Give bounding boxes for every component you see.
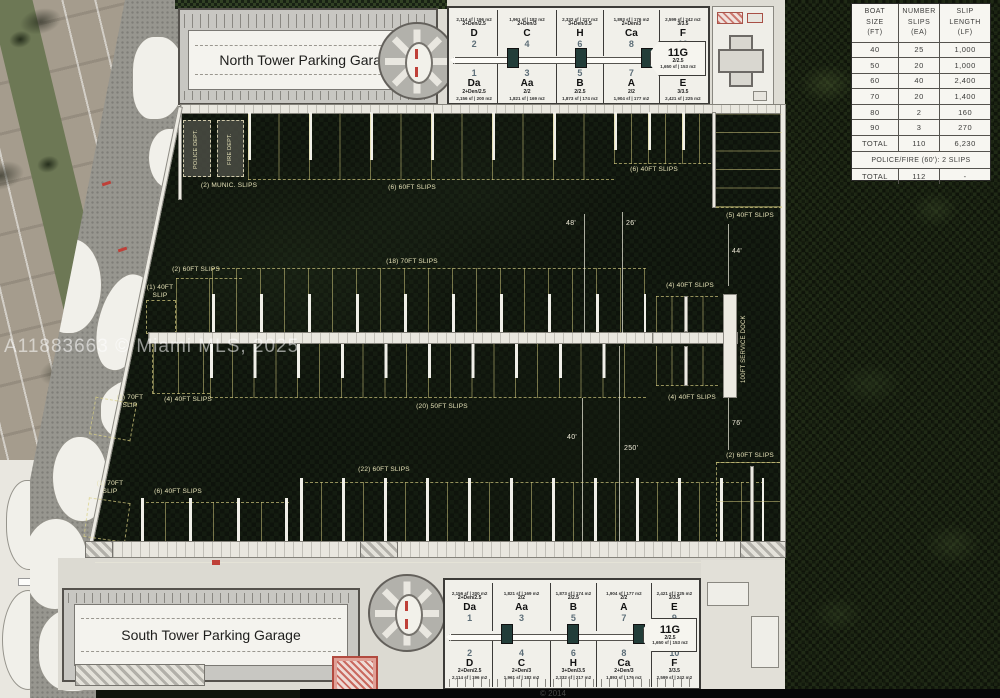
table-cell: 25 bbox=[899, 43, 940, 58]
mid-40ft-one-slip bbox=[146, 300, 176, 334]
right-40ft-slips bbox=[716, 114, 782, 208]
mid-70ft-label: (18) 70FT SLIPS bbox=[380, 258, 444, 266]
south-garage-floor: South Tower Parking Garage bbox=[74, 604, 348, 666]
lane-dash bbox=[81, 651, 341, 652]
police-slip-label: POLICE DEPT. bbox=[193, 125, 200, 174]
unit-letter: Aa bbox=[515, 602, 528, 614]
mid-40ft-one-label: (1) 40FT SLIP bbox=[143, 284, 177, 301]
finger-pier bbox=[684, 296, 688, 332]
small-structure bbox=[707, 582, 749, 606]
unit-letter: 11G bbox=[660, 624, 680, 636]
unit-area: 1,873 sf | 174 m2 bbox=[562, 96, 598, 101]
parking-ticks bbox=[68, 593, 354, 603]
elevator-core bbox=[507, 48, 519, 68]
unit-letter: H bbox=[576, 28, 583, 40]
southeast-plan-area bbox=[701, 560, 785, 690]
south-boardwalk bbox=[85, 541, 786, 558]
dim-line bbox=[728, 398, 729, 450]
table-footer: TOTAL 110 6,230 POLICE/FIRE (60'): 2 SLI… bbox=[852, 135, 990, 184]
table-row: 90 3 270 bbox=[852, 120, 990, 135]
right-40ft-label: (5) 40FT SLIPS bbox=[718, 212, 782, 220]
unit-letter: D bbox=[470, 28, 477, 40]
south-unit-plan: 2,156 sf | 200 m2 2+Den/2.5 Da 1 1,821 s… bbox=[443, 578, 701, 690]
unit-cell: 2,114 sf | 196 m2 2+Den/2.5 D 2 bbox=[451, 10, 498, 56]
corridor bbox=[449, 634, 649, 641]
red-site-mark bbox=[118, 247, 127, 253]
finger-pier bbox=[684, 346, 688, 386]
dim-line bbox=[584, 214, 585, 334]
turnaround-center bbox=[405, 42, 433, 84]
unit-area: 1,904 sf | 177 m2 bbox=[614, 96, 650, 101]
bot-70ft-one-label: (1) 70FT SLIP bbox=[92, 480, 128, 497]
table-cell: 6,230 bbox=[940, 136, 990, 151]
table-grand-total-row: TOTAL 112 - bbox=[852, 169, 990, 184]
table-row: 50 20 1,000 bbox=[852, 58, 990, 74]
unit-area: 2,156 sf | 200 m2 bbox=[456, 96, 492, 101]
site-dim-line bbox=[95, 562, 783, 563]
north-turnaround bbox=[378, 22, 456, 100]
unit-letter: A bbox=[620, 602, 627, 614]
small-structure bbox=[747, 13, 763, 23]
north-garage-label: North Tower Parking Garage bbox=[219, 52, 396, 68]
table-cell: 3 bbox=[899, 120, 940, 135]
unit-area: 2,421 sf | 225 m2 bbox=[665, 96, 701, 101]
south-turnaround bbox=[368, 574, 446, 652]
lane-dash bbox=[81, 618, 341, 619]
image-footer-bar: © 2014 bbox=[300, 689, 1000, 698]
finger-pier bbox=[750, 466, 754, 542]
red-building-hatch bbox=[337, 661, 373, 691]
table-body: 40 25 1,000 50 20 1,000 60 40 2,400 bbox=[852, 43, 990, 136]
table-cell: 60 bbox=[852, 74, 899, 89]
bot-40ft-label: (6) 40FT SLIPS bbox=[148, 488, 208, 496]
table-cell: 1,000 bbox=[940, 43, 990, 58]
bot-60ft-right-slips bbox=[716, 462, 780, 542]
fire-slip: FIRE DEPT. bbox=[217, 120, 244, 177]
table-cell: 110 bbox=[899, 136, 940, 151]
south-garage-label: South Tower Parking Garage bbox=[121, 627, 301, 643]
plan-edge-ticks bbox=[449, 679, 695, 687]
elevator-core bbox=[575, 48, 587, 68]
unit-number: 3 bbox=[519, 613, 524, 623]
unit-11g: 11G 2/2.5 1,650 sf | 153 m2 bbox=[650, 41, 706, 76]
table-police-row: POLICE/FIRE (60'): 2 SLIPS bbox=[852, 152, 990, 169]
red-hatch-structure bbox=[717, 12, 743, 24]
bot-60ft-label: (22) 60FT SLIPS bbox=[350, 466, 418, 474]
unit-cell: 5 B 2/2.5 1,873 sf | 174 m2 bbox=[557, 64, 604, 105]
small-structure bbox=[751, 616, 779, 668]
small-structure bbox=[753, 91, 767, 101]
table-cell: 20 bbox=[899, 58, 940, 73]
bot-70ft-one-slip bbox=[83, 497, 130, 542]
bot-40ft-piers bbox=[141, 498, 289, 543]
unit-number: 4 bbox=[519, 648, 524, 658]
police-slip: POLICE DEPT. bbox=[183, 120, 211, 177]
table-row: 80 2 160 bbox=[852, 105, 990, 121]
unit-number: 1 bbox=[472, 68, 477, 78]
boardwalk-hatch bbox=[85, 541, 113, 558]
boardwalk-hatch bbox=[740, 541, 786, 558]
mid-40ft-left-label: (4) 40FT SLIPS bbox=[158, 396, 218, 404]
dim-40: 40' bbox=[567, 434, 577, 441]
unit-area: 1,650 sf | 153 m2 bbox=[660, 65, 696, 70]
table-cell: 40 bbox=[852, 43, 899, 58]
dim-line bbox=[728, 224, 729, 286]
table-header-cell: NUMBER SLIPS (EA) bbox=[899, 4, 940, 42]
mls-watermark: A11883663 © Miami MLS, 2025 bbox=[4, 336, 299, 358]
unit-cell: 7 A 2/2 1,904 sf | 177 m2 bbox=[604, 64, 660, 105]
unit-11g: 11G 2/2.5 1,650 sf | 153 m2 bbox=[643, 618, 697, 652]
table-cell: 1,400 bbox=[940, 89, 990, 104]
top-60ft-slips bbox=[248, 114, 614, 180]
munic-slips-label: (2) MUNIC. SLIPS bbox=[182, 182, 276, 190]
dim-48: 48' bbox=[566, 220, 576, 227]
footer-copyright: © 2014 bbox=[540, 689, 566, 698]
amenity-building bbox=[712, 6, 774, 106]
red-site-mark bbox=[212, 560, 220, 565]
unit-number: 8 bbox=[621, 648, 626, 658]
unit-letter: Da bbox=[463, 602, 476, 614]
table-cell: 270 bbox=[940, 120, 990, 135]
unit-number: 3 bbox=[525, 68, 530, 78]
unit-number: 5 bbox=[577, 68, 582, 78]
table-cell: 2,400 bbox=[940, 74, 990, 89]
table-header-cell: BOAT SIZE (FT) bbox=[852, 4, 899, 42]
table-cell: 2 bbox=[899, 105, 940, 120]
car-mark bbox=[405, 619, 408, 629]
unit-area: 1,821 sf | 169 m2 bbox=[509, 96, 545, 101]
unit-number: 5 bbox=[571, 613, 576, 623]
unit-area: 1,650 sf | 153 m2 bbox=[652, 641, 688, 646]
fire-slip-label: FIRE DEPT. bbox=[227, 125, 234, 174]
table-cell: 160 bbox=[940, 105, 990, 120]
building-footprint bbox=[718, 49, 764, 73]
service-dock-label: 100FT SERVICE DOCK bbox=[741, 303, 749, 395]
marina-site-plan: North Tower Parking Garage 2,114 sf | 19… bbox=[0, 0, 1000, 698]
table-row: 70 20 1,400 bbox=[852, 89, 990, 105]
unit-letter: C bbox=[523, 28, 530, 40]
table-cell: - bbox=[940, 169, 990, 184]
table-row: 60 40 2,400 bbox=[852, 74, 990, 90]
service-dock bbox=[723, 294, 737, 398]
table-header-cell: SLIP LENGTH (LF) bbox=[940, 4, 990, 42]
table-cell: 80 bbox=[852, 105, 899, 120]
table-header-row: BOAT SIZE (FT) NUMBER SLIPS (EA) SLIP LE… bbox=[852, 4, 990, 43]
elevator-core bbox=[501, 624, 513, 644]
table-row: 40 25 1,000 bbox=[852, 43, 990, 59]
slip-summary-table: BOAT SIZE (FT) NUMBER SLIPS (EA) SLIP LE… bbox=[851, 3, 991, 181]
boardwalk-hatch bbox=[360, 541, 398, 558]
unit-letter: B bbox=[570, 602, 577, 614]
car-mark bbox=[415, 49, 418, 59]
dim-26: 26' bbox=[626, 220, 636, 227]
parking-ticks bbox=[184, 14, 432, 28]
mid-40ft-rb-label: (4) 40FT SLIPS bbox=[662, 394, 722, 402]
car-mark bbox=[405, 601, 408, 611]
unit-cell: 2,156 sf | 200 m2 2+Den/2.5 Da 1 bbox=[447, 583, 493, 631]
top-40ft-slips bbox=[614, 114, 716, 164]
unit-number: 4 bbox=[525, 39, 530, 49]
hatched-pad bbox=[75, 664, 205, 686]
top-40ft-label: (6) 40FT SLIPS bbox=[624, 166, 684, 174]
mid-70ft-one-slip bbox=[89, 397, 137, 442]
turnaround-center bbox=[395, 594, 423, 636]
elevator-core bbox=[567, 624, 579, 644]
table-total-row: TOTAL 110 6,230 bbox=[852, 135, 990, 152]
dim-line bbox=[622, 212, 623, 334]
unit-number: 2 bbox=[467, 648, 472, 658]
mid-40ft-rt-label: (4) 40FT SLIPS bbox=[660, 282, 720, 290]
right-cross-pier bbox=[652, 332, 728, 344]
unit-number: 8 bbox=[629, 39, 634, 49]
dim-76: 76' bbox=[732, 420, 742, 427]
bot-60ft-piers bbox=[300, 478, 764, 543]
table-cell: 1,000 bbox=[940, 58, 990, 73]
unit-letter: E bbox=[671, 602, 678, 614]
dim-250: 250' bbox=[624, 445, 638, 452]
unit-number: 2 bbox=[472, 39, 477, 49]
north-unit-plan: 2,114 sf | 196 m2 2+Den/2.5 D 2 1,961 sf… bbox=[447, 6, 710, 105]
red-site-mark bbox=[102, 181, 111, 187]
unit-number: 7 bbox=[629, 68, 634, 78]
table-cell: 70 bbox=[852, 89, 899, 104]
unit-cell: 1 Da 2+Den/2.5 2,156 sf | 200 m2 bbox=[451, 64, 498, 105]
table-cell: 50 bbox=[852, 58, 899, 73]
table-cell: 20 bbox=[899, 89, 940, 104]
mid-70ft-piers bbox=[212, 294, 646, 334]
unit-number: 1 bbox=[467, 613, 472, 623]
table-cell: 112 bbox=[899, 169, 940, 184]
corridor bbox=[453, 57, 658, 64]
table-cell: TOTAL bbox=[852, 169, 899, 184]
unit-number: 7 bbox=[621, 613, 626, 623]
table-cell: 90 bbox=[852, 120, 899, 135]
car-mark bbox=[415, 67, 418, 77]
dim-44: 44' bbox=[732, 248, 742, 255]
unit-letter: F bbox=[680, 28, 686, 40]
top-60ft-label: (6) 60FT SLIPS bbox=[382, 184, 442, 192]
unit-number: 6 bbox=[571, 648, 576, 658]
table-cell: 40 bbox=[899, 74, 940, 89]
bot-60ft-right-label: (2) 60FT SLIPS bbox=[718, 452, 782, 460]
unit-cell: 3 Aa 2/2 1,821 sf | 169 m2 bbox=[498, 64, 557, 105]
mid-50ft-label: (20) 50FT SLIPS bbox=[408, 403, 476, 411]
unit-letter: Ca bbox=[625, 28, 638, 40]
table-cell: TOTAL bbox=[852, 136, 899, 151]
